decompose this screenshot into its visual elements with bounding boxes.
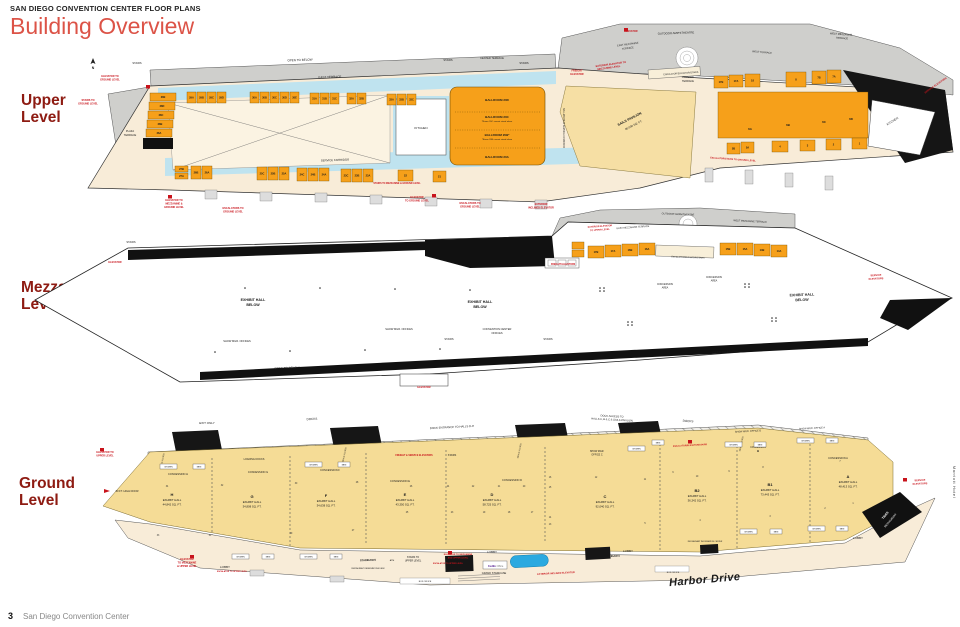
svg-text:ELEVATOR: ELEVATOR	[417, 386, 430, 389]
svg-text:23C: 23C	[344, 174, 349, 178]
svg-text:43,350 SQ. FT.: 43,350 SQ. FT.	[396, 503, 415, 507]
svg-text:EAST TERRACE: EAST TERRACE	[318, 75, 341, 80]
svg-text:24B: 24B	[311, 173, 316, 177]
svg-text:MEN: MEN	[758, 444, 763, 446]
svg-text:24C: 24C	[300, 173, 305, 177]
svg-text:BALLROOM 20D: BALLROOM 20D	[485, 98, 510, 102]
svg-text:AND UPPER LEVEL: AND UPPER LEVEL	[448, 557, 469, 560]
svg-text:16B: 16B	[628, 248, 633, 252]
svg-text:28C: 28C	[159, 113, 164, 117]
freight-elevator-bank	[545, 258, 579, 268]
svg-text:B1: B1	[767, 482, 773, 487]
svg-text:WOMEN: WOMEN	[309, 464, 318, 466]
svg-text:36,342 SQ. FT.: 36,342 SQ. FT.	[688, 499, 707, 503]
sails-pavilion	[560, 86, 696, 178]
svg-text:73,443 SQ. FT.: 73,443 SQ. FT.	[761, 493, 780, 497]
svg-text:E: E	[404, 492, 407, 497]
svg-text:5B: 5B	[732, 147, 735, 151]
svg-text:WOMEN: WOMEN	[729, 444, 738, 446]
svg-text:OPEN TO BELOW: OPEN TO BELOW	[712, 349, 737, 354]
svg-text:Office: Office	[497, 564, 504, 568]
svg-text:MEN: MEN	[656, 442, 661, 444]
svg-text:B: B	[757, 449, 759, 453]
mezz-stair-stub	[400, 374, 448, 386]
svg-text:C: C	[604, 494, 607, 499]
svg-text:H: H	[171, 492, 174, 497]
svg-text:STAIRS: STAIRS	[126, 240, 135, 244]
svg-text:MEN: MEN	[266, 556, 271, 558]
svg-text:25A: 25A	[282, 172, 287, 176]
svg-text:EXHIBIT HALL: EXHIBIT HALL	[396, 498, 415, 502]
svg-text:STAIRS: STAIRS	[443, 58, 452, 62]
svg-text:5A: 5A	[746, 146, 749, 150]
svg-text:DOCKS: DOCKS	[683, 419, 694, 424]
svg-text:G: G	[250, 494, 253, 499]
floor-plans-canvas: 28E28D28C28B28A29A29B29C29D30A30B30C30D3…	[0, 0, 960, 627]
svg-text:ELEVATORS: ELEVATORS	[912, 482, 927, 486]
svg-text:SHOW MGR. OFFICES: SHOW MGR. OFFICES	[385, 327, 413, 331]
svg-text:WOMEN: WOMEN	[632, 448, 641, 450]
svg-text:CENTER TERRACE: CENTER TERRACE	[480, 56, 504, 60]
svg-text:CONCESSION E: CONCESSION E	[390, 479, 410, 483]
svg-text:28D: 28D	[160, 104, 165, 108]
svg-text:& UPPER LEVEL: & UPPER LEVEL	[177, 565, 197, 568]
svg-text:31C: 31C	[332, 97, 337, 101]
svg-text:BOX OFFICE: BOX OFFICE	[419, 581, 432, 583]
svg-text:ATM: ATM	[390, 559, 395, 562]
svg-text:29C: 29C	[209, 96, 214, 100]
svg-text:BALLROOM 20B*: BALLROOM 20B*	[485, 133, 511, 137]
svg-text:WOMEN: WOMEN	[236, 556, 245, 558]
svg-text:TERRACE: TERRACE	[682, 80, 694, 83]
high-door-arrow	[104, 489, 110, 493]
svg-text:LOADING DOCKS: LOADING DOCKS	[244, 458, 265, 461]
svg-text:31A: 31A	[312, 97, 317, 101]
svg-text:BELOW: BELOW	[795, 298, 809, 302]
svg-text:ELEVATOR: ELEVATOR	[570, 73, 583, 76]
svg-text:15A: 15A	[743, 247, 748, 251]
svg-text:OPEN TO BELOW: OPEN TO BELOW	[287, 58, 312, 63]
svg-text:33C: 33C	[409, 98, 414, 102]
svg-text:17B: 17B	[719, 80, 724, 84]
svg-text:30C: 30C	[272, 96, 277, 100]
svg-text:RESTAURANT INFORMATION CENTER: RESTAURANT INFORMATION CENTER	[688, 540, 723, 543]
svg-text:MEN: MEN	[197, 466, 202, 468]
svg-text:INCLINED ELEVATOR: INCLINED ELEVATOR	[528, 207, 554, 210]
svg-text:AREA: AREA	[662, 287, 669, 290]
svg-text:30 FT. HIGH DOOR: 30 FT. HIGH DOOR	[116, 489, 139, 493]
svg-text:30A: 30A	[252, 96, 257, 100]
svg-text:BALLROOM 20A: BALLROOM 20A	[485, 155, 510, 159]
svg-text:TO GROUND LEVEL: TO GROUND LEVEL	[405, 200, 429, 203]
svg-text:GRAND STAIRCASE: GRAND STAIRCASE	[482, 571, 507, 575]
ground-level-plan: EXIT ONLYDOCKSDOCK ENTRANCE TO HALLS D-H…	[96, 413, 957, 589]
svg-text:STAIRS: STAIRS	[543, 337, 552, 341]
svg-text:UPPER LEVEL: UPPER LEVEL	[405, 560, 422, 563]
svg-text:28A: 28A	[157, 131, 162, 135]
svg-text:ESCALATOR TO UPPER LEVEL: ESCALATOR TO UPPER LEVEL	[433, 562, 464, 565]
svg-text:*Room 20C cannot stand alone: *Room 20C cannot stand alone	[482, 120, 513, 123]
svg-text:BELOW: BELOW	[473, 305, 487, 309]
svg-text:EXHIBIT HALL: EXHIBIT HALL	[688, 494, 707, 498]
svg-text:SHOW MGR. OFFICES: SHOW MGR. OFFICES	[223, 339, 251, 343]
svg-text:58,725 SQ. FT.: 58,725 SQ. FT.	[483, 503, 502, 507]
svg-text:7A: 7A	[832, 75, 835, 79]
svg-text:CONCESSION: CONCESSION	[750, 447, 766, 449]
svg-text:23B: 23B	[355, 174, 360, 178]
svg-text:33A: 33A	[389, 98, 394, 102]
svg-text:LOBBY: LOBBY	[487, 550, 497, 554]
svg-text:OFFICES: OFFICES	[491, 331, 503, 335]
svg-text:D: D	[491, 492, 494, 497]
svg-text:EXHIBIT HALL: EXHIBIT HALL	[596, 500, 615, 504]
svg-text:A: A	[847, 474, 850, 479]
svg-text:29A: 29A	[189, 96, 194, 100]
svg-text:BOX OFFICE: BOX OFFICE	[667, 572, 680, 574]
svg-text:CONVENTION CENTER: CONVENTION CENTER	[483, 327, 512, 331]
svg-text:STAIRS: STAIRS	[132, 61, 141, 65]
svg-text:34,808 SQ. FT.: 34,808 SQ. FT.	[243, 505, 262, 509]
svg-text:STAIRS TO MEZZANINE & GROUND L: STAIRS TO MEZZANINE & GROUND LEVEL	[373, 182, 421, 185]
svg-text:LOBBY: LOBBY	[623, 549, 633, 553]
svg-text:EXHIBIT HALL: EXHIBIT HALL	[839, 480, 858, 484]
svg-text:STARBUCKS: STARBUCKS	[360, 558, 376, 563]
svg-text:UPPER LEVEL: UPPER LEVEL	[96, 455, 114, 458]
svg-text:LOBBY: LOBBY	[220, 565, 230, 569]
svg-text:25B: 25B	[271, 172, 276, 176]
svg-text:15B: 15B	[726, 247, 731, 251]
svg-text:ELEVATOR TO MEZZANINE: ELEVATOR TO MEZZANINE	[444, 553, 473, 556]
svg-text:29D: 29D	[219, 96, 224, 100]
svg-text:27B: 27B	[179, 167, 184, 171]
svg-text:24A: 24A	[322, 173, 327, 177]
svg-text:28B: 28B	[158, 122, 163, 126]
svg-text:CONCESSION A: CONCESSION A	[828, 456, 848, 460]
svg-text:17B: 17B	[594, 250, 599, 254]
svg-text:MEN: MEN	[342, 464, 347, 466]
svg-text:Marriott Hotel: Marriott Hotel	[952, 466, 957, 498]
svg-text:BALLROOM 20 SERVICE CORRIDOR: BALLROOM 20 SERVICE CORRIDOR	[562, 108, 565, 148]
svg-text:92,040 SQ. FT.: 92,040 SQ. FT.	[596, 505, 615, 509]
svg-text:23A: 23A	[366, 174, 371, 178]
svg-text:GROUND LEVEL: GROUND LEVEL	[100, 79, 120, 82]
svg-text:29B: 29B	[199, 96, 204, 100]
svg-text:PLAZA: PLAZA	[126, 129, 134, 133]
svg-text:EXHIBIT HALL: EXHIBIT HALL	[243, 500, 262, 504]
svg-text:30E: 30E	[292, 96, 297, 100]
svg-text:MEN: MEN	[840, 528, 845, 530]
svg-text:FREIGHT & SERVICE ELEVATORS: FREIGHT & SERVICE ELEVATORS	[395, 454, 433, 457]
svg-text:OFFICE C: OFFICE C	[591, 454, 602, 457]
svg-text:ESCALATOR TO UPPER LEVEL: ESCALATOR TO UPPER LEVEL	[217, 570, 248, 573]
svg-text:STAIRS: STAIRS	[444, 337, 453, 341]
svg-text:EXHIBIT HALL: EXHIBIT HALL	[483, 498, 502, 502]
svg-text:BELOW: BELOW	[246, 303, 260, 307]
upper-open-void	[168, 95, 390, 170]
svg-text:GROUND LEVEL: GROUND LEVEL	[78, 103, 98, 106]
svg-text:SHOW MGR. OFFICE A: SHOW MGR. OFFICE A	[799, 426, 825, 430]
svg-text:MEN: MEN	[830, 440, 835, 442]
svg-text:7B: 7B	[817, 76, 820, 80]
svg-text:27A: 27A	[179, 174, 184, 178]
svg-text:WOMEN: WOMEN	[164, 466, 173, 468]
svg-text:CONCESSION F: CONCESSION F	[320, 468, 340, 472]
svg-text:30D: 30D	[282, 96, 287, 100]
svg-text:14B: 14B	[760, 248, 765, 252]
svg-text:B2: B2	[694, 488, 700, 493]
inclined-elevator	[510, 554, 549, 568]
svg-text:STAIRS: STAIRS	[448, 454, 457, 457]
svg-text:WOMEN: WOMEN	[744, 531, 753, 533]
svg-text:WOMEN: WOMEN	[304, 556, 313, 558]
svg-text:RESTAURANT RESERVATIONS DESK: RESTAURANT RESERVATIONS DESK	[351, 567, 385, 570]
svg-text:STAIRS: STAIRS	[519, 61, 528, 65]
svg-text:LOBBY: LOBBY	[853, 536, 863, 540]
svg-text:30B: 30B	[262, 96, 267, 100]
svg-text:34,638 SQ. FT.: 34,638 SQ. FT.	[317, 504, 336, 508]
svg-text:16A: 16A	[645, 247, 650, 251]
svg-text:AREA: AREA	[711, 280, 718, 283]
svg-text:32B: 32B	[359, 97, 364, 101]
svg-text:44,842 SQ. FT.: 44,842 SQ. FT.	[163, 503, 182, 507]
svg-text:MEN: MEN	[774, 531, 779, 533]
svg-text:17A: 17A	[734, 79, 739, 83]
svg-text:WOMEN: WOMEN	[812, 528, 821, 530]
svg-text:CONCESSION D: CONCESSION D	[502, 478, 522, 482]
svg-text:GROUND LEVEL: GROUND LEVEL	[460, 206, 480, 209]
svg-text:EXHIBIT HALL: EXHIBIT HALL	[241, 298, 267, 302]
amphitheatre-upper	[676, 47, 698, 69]
svg-text:TERRACE: TERRACE	[124, 133, 137, 137]
svg-text:EXHIBIT HALL: EXHIBIT HALL	[468, 300, 494, 304]
svg-text:CONCESSION H: CONCESSION H	[168, 472, 188, 476]
svg-text:EXHIBIT HALL: EXHIBIT HALL	[163, 498, 182, 502]
svg-text:EXIT ONLY: EXIT ONLY	[199, 421, 214, 425]
svg-text:DOCKS: DOCKS	[307, 417, 318, 422]
svg-text:ELEVATOR: ELEVATOR	[624, 30, 637, 33]
svg-text:14A: 14A	[777, 249, 782, 253]
svg-text:26B: 26B	[194, 171, 199, 175]
svg-text:WOMEN: WOMEN	[801, 440, 810, 442]
svg-text:48,413 SQ. FT.: 48,413 SQ. FT.	[839, 485, 858, 489]
svg-text:GROUND LEVEL: GROUND LEVEL	[164, 206, 184, 209]
svg-text:*Room 20B cannot stand alone: *Room 20B cannot stand alone	[482, 138, 513, 141]
svg-text:33B: 33B	[399, 98, 404, 102]
svg-text:EXHIBIT HALL: EXHIBIT HALL	[317, 499, 336, 503]
svg-text:PAVILION: PAVILION	[682, 76, 693, 79]
svg-text:KITCHEN: KITCHEN	[414, 126, 427, 130]
svg-text:FREIGHT ELEVATORS: FREIGHT ELEVATORS	[551, 263, 576, 266]
svg-text:CONCESSION G: CONCESSION G	[248, 470, 268, 474]
svg-text:MEN: MEN	[334, 556, 339, 558]
upper-level-plan: 28E28D28C28B28A29A29B29C29D30A30B30C30D3…	[78, 24, 953, 214]
mezzanine-level-plan: 17B17A16B16A15B15A14B14A STAIRSEXHIBIT H…	[35, 208, 952, 389]
svg-text:BALLROOM 20C: BALLROOM 20C	[485, 115, 510, 119]
svg-text:GROUND LEVEL: GROUND LEVEL	[223, 211, 243, 214]
svg-text:26A: 26A	[205, 171, 210, 175]
svg-text:EXHIBIT HALL: EXHIBIT HALL	[761, 488, 780, 492]
compass-icon	[91, 58, 96, 64]
svg-text:N: N	[92, 66, 95, 70]
svg-text:32A: 32A	[349, 97, 354, 101]
svg-text:17A: 17A	[611, 249, 616, 253]
svg-text:DOCK ENTRANCE TO HALLS D-H: DOCK ENTRANCE TO HALLS D-H	[430, 424, 474, 430]
svg-text:28E: 28E	[161, 95, 166, 99]
svg-text:ELEVATOR: ELEVATOR	[108, 261, 121, 264]
upper-dark-room	[143, 138, 173, 149]
svg-text:31B: 31B	[322, 97, 327, 101]
svg-text:FedEx: FedEx	[488, 564, 496, 568]
svg-text:25C: 25C	[260, 172, 265, 176]
